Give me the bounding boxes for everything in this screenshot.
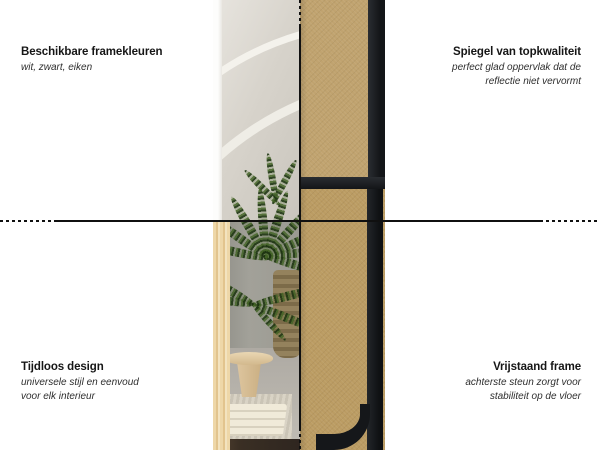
note-subtitle: achterste steun zorgt voor stabiliteit o… — [457, 376, 581, 403]
support-crossbar — [300, 177, 385, 189]
divider-vertical-dotted-top — [299, 0, 301, 25]
white-frame-swatch — [213, 0, 222, 222]
black-frame-bar — [368, 0, 385, 178]
divider-horizontal-dotted-left — [0, 220, 57, 222]
note-title: Spiegel van topkwaliteit — [441, 46, 581, 58]
note-subtitle: perfect glad oppervlak dat de reflectie … — [441, 61, 581, 88]
note-freestanding-frame: Vrijstaand frame achterste steun zorgt v… — [457, 361, 581, 403]
note-title: Beschikbare framekleuren — [21, 46, 162, 58]
product-infographic: Beschikbare framekleuren wit, zwart, eik… — [0, 0, 600, 450]
mirror-back-image — [300, 0, 385, 450]
note-title: Vrijstaand frame — [457, 361, 581, 373]
note-timeless-design: Tijdloos design universele stijl en eenv… — [21, 361, 149, 403]
divider-horizontal-dotted-right — [540, 220, 600, 222]
divider-vertical-dotted-bottom — [299, 428, 301, 450]
note-frame-colors: Beschikbare framekleuren wit, zwart, eik… — [21, 46, 162, 75]
oak-frame-swatch — [213, 222, 230, 450]
note-subtitle: universele stijl en eenvoud voor elk int… — [21, 376, 149, 403]
mirror-front-image — [213, 0, 300, 450]
note-title: Tijdloos design — [21, 361, 149, 373]
note-mirror-quality: Spiegel van topkwaliteit perfect glad op… — [441, 46, 581, 88]
divider-vertical — [299, 25, 301, 428]
note-subtitle: wit, zwart, eiken — [21, 61, 162, 75]
